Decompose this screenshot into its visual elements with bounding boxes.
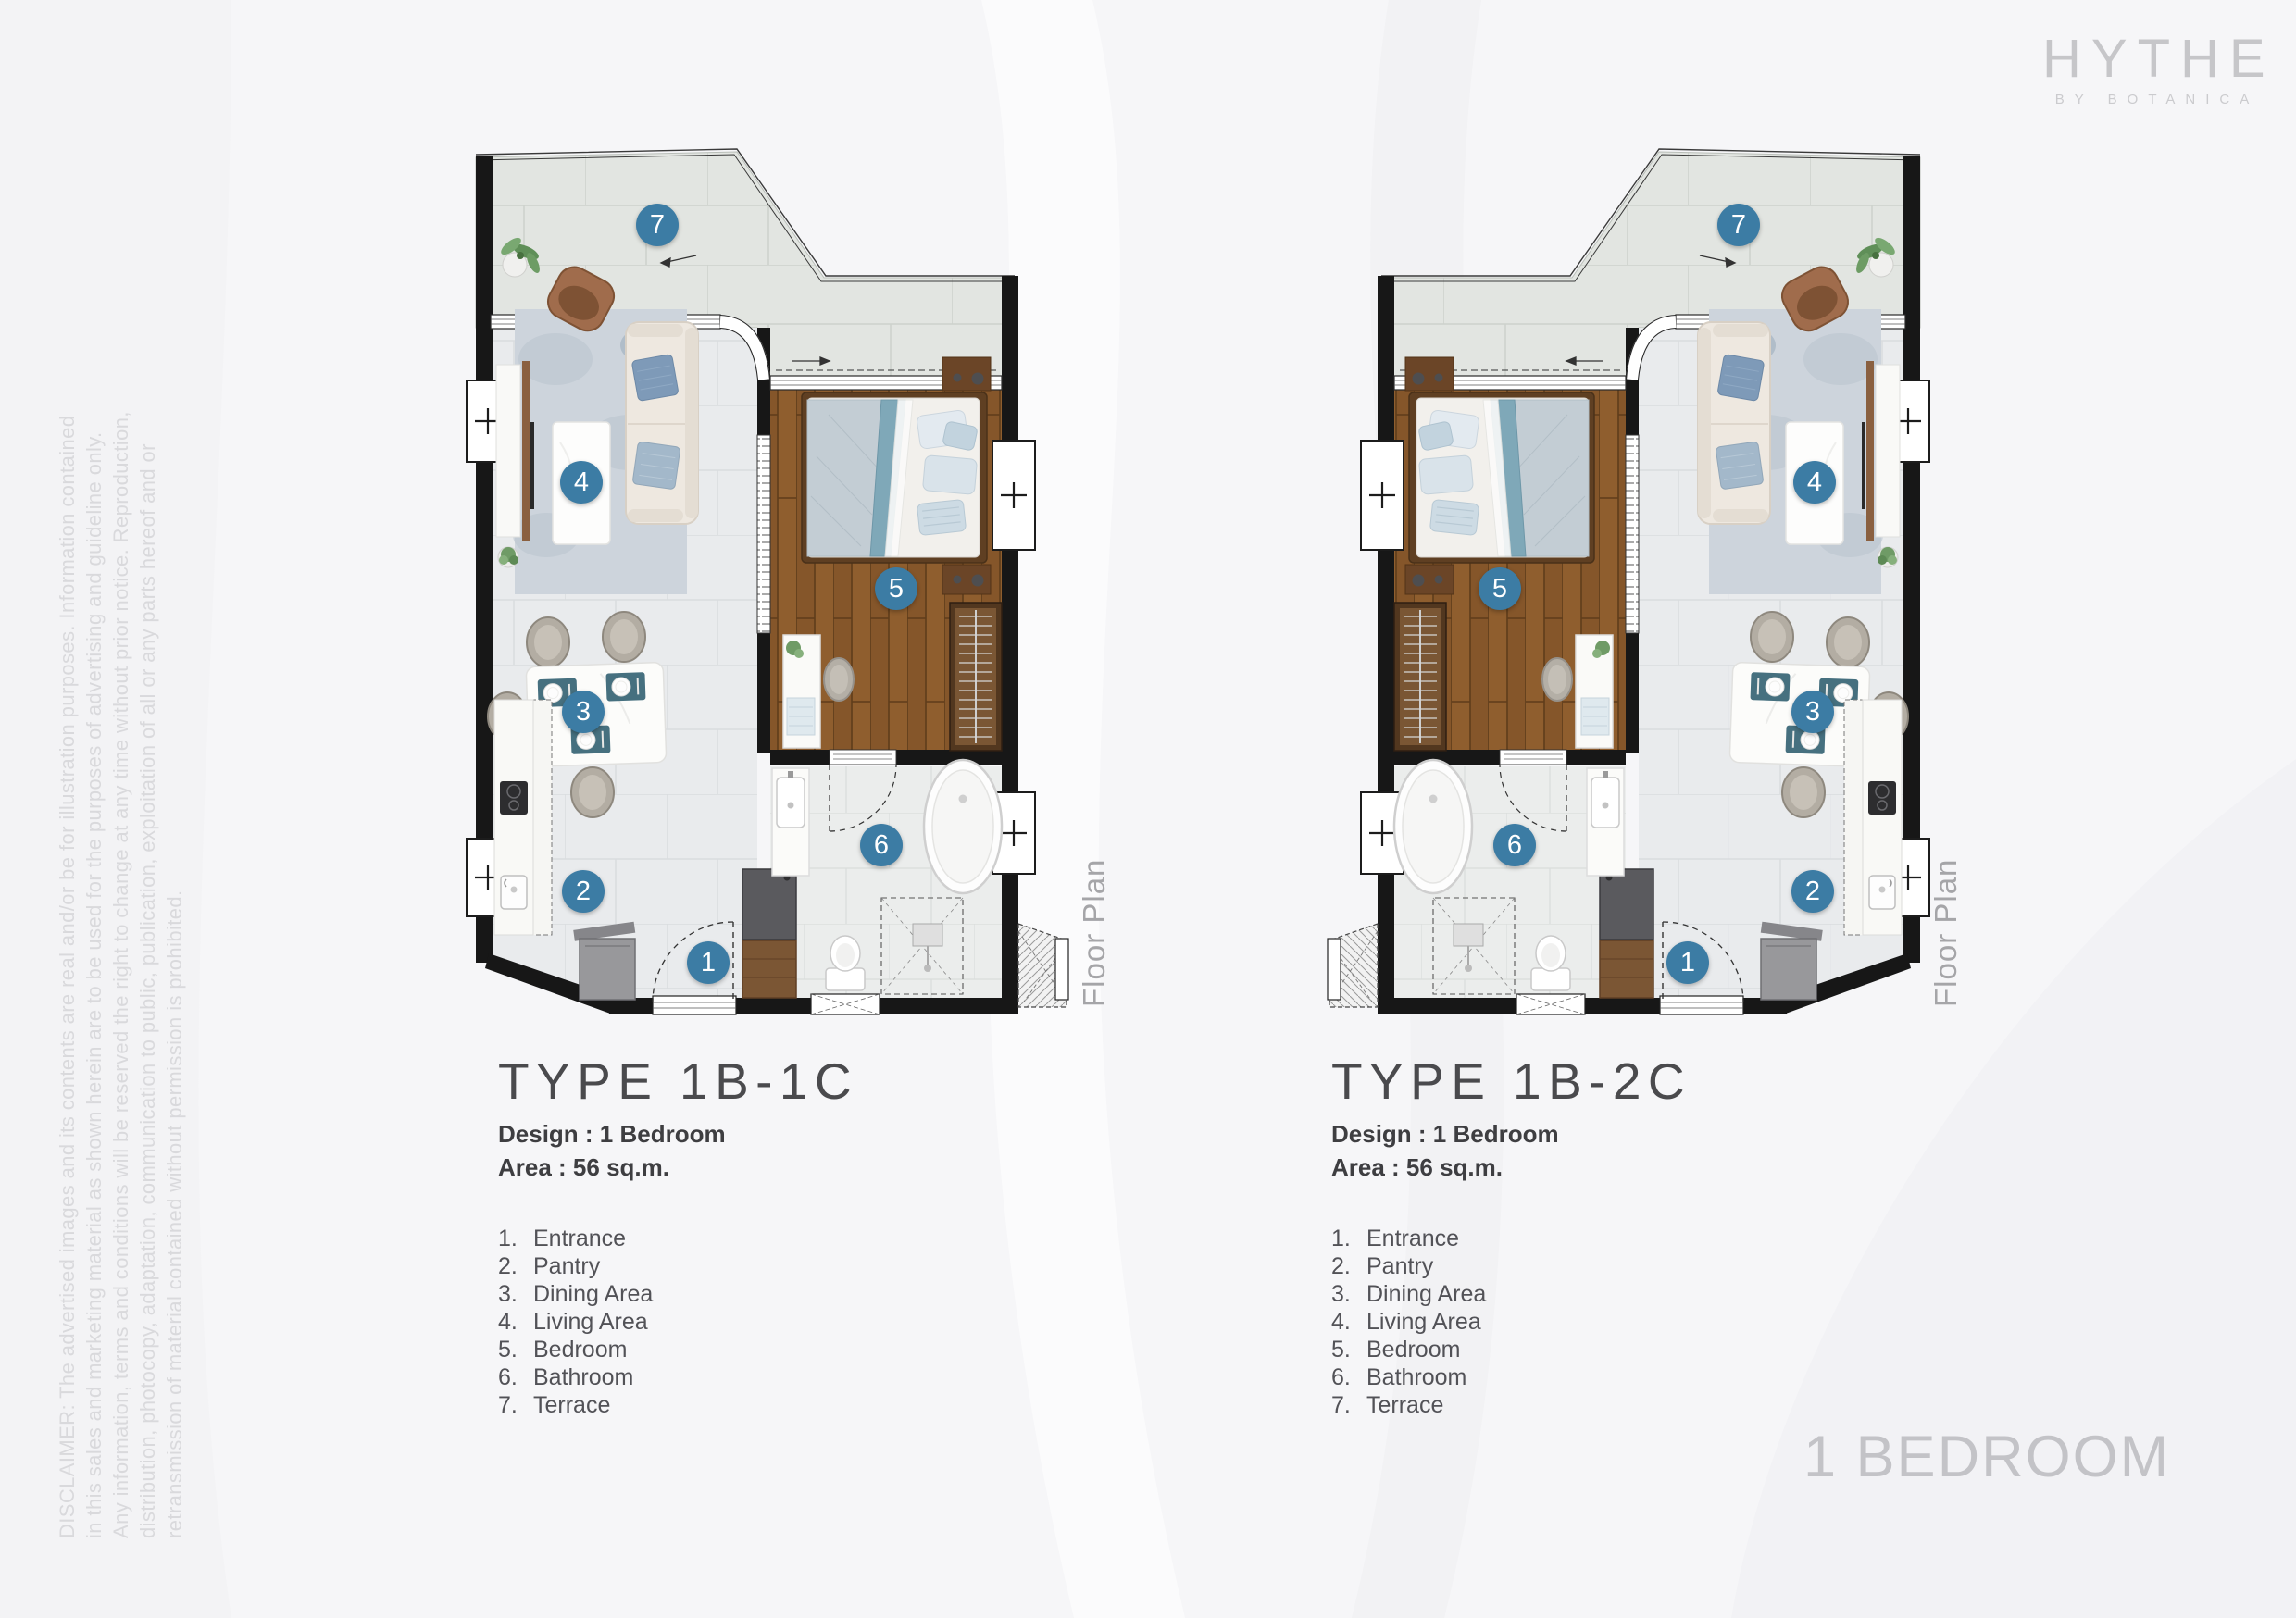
disclaimer: DISCLAIMER: The advertised images and it…	[54, 57, 188, 1538]
legend-item-label: Entrance	[1366, 1225, 1459, 1252]
legend-item: 5.Bedroom	[1331, 1336, 1887, 1363]
disclaimer-line: in this sales and marketing material as …	[81, 57, 107, 1538]
legend-item-number: 5.	[1331, 1336, 1366, 1363]
legend-list: 1.Entrance2.Pantry3.Dining Area4.Living …	[1331, 1225, 1887, 1419]
brand-byline: BY BOTANICA	[2042, 92, 2272, 107]
legend-item: 1.Entrance	[498, 1225, 1054, 1252]
area-marker: 7	[1717, 204, 1760, 246]
marker-layer: 7432156	[1322, 146, 1933, 1026]
background-waves	[0, 0, 2296, 1618]
marker-layer: 7432156	[463, 146, 1074, 1026]
area-marker: 6	[1493, 824, 1536, 866]
legend-item-label: Bathroom	[533, 1363, 633, 1391]
legend-item: 4.Living Area	[1331, 1308, 1887, 1336]
legend-item: 6.Bathroom	[498, 1363, 1054, 1391]
type-block-1b-2c: TYPE 1B-2C Design : 1 Bedroom Area : 56 …	[1331, 1052, 1887, 1419]
legend-item-number: 2.	[498, 1252, 533, 1280]
legend-item-label: Pantry	[533, 1252, 600, 1280]
legend-item-label: Terrace	[1366, 1391, 1443, 1419]
legend-item-label: Pantry	[1366, 1252, 1433, 1280]
type-block-1b-1c: TYPE 1B-1C Design : 1 Bedroom Area : 56 …	[498, 1052, 1054, 1419]
area-marker: 1	[1666, 941, 1709, 984]
brochure-page: DISCLAIMER: The advertised images and it…	[0, 0, 2296, 1618]
design-label: Design : 1 Bedroom	[498, 1120, 1054, 1149]
legend-item-label: Entrance	[533, 1225, 626, 1252]
area-marker: 6	[860, 824, 903, 866]
floor-plan-caption: Floor Plan	[1077, 859, 1112, 1007]
floor-plan-type-1b-2c: 7432156	[1322, 146, 1933, 1026]
type-title: TYPE 1B-2C	[1331, 1052, 1887, 1111]
area-marker: 2	[1791, 870, 1834, 913]
legend-item: 5.Bedroom	[498, 1336, 1054, 1363]
floor-plan-caption: Floor Plan	[1928, 859, 1964, 1007]
legend-item: 3.Dining Area	[1331, 1280, 1887, 1308]
area-marker: 4	[560, 461, 603, 504]
legend-item-label: Bathroom	[1366, 1363, 1466, 1391]
legend-item-number: 2.	[1331, 1252, 1366, 1280]
legend-item-number: 1.	[1331, 1225, 1366, 1252]
area-marker: 5	[875, 567, 917, 610]
area-label: Area : 56 sq.m.	[498, 1153, 1054, 1182]
legend-list: 1.Entrance2.Pantry3.Dining Area4.Living …	[498, 1225, 1054, 1419]
legend-item: 2.Pantry	[1331, 1252, 1887, 1280]
disclaimer-line: Any information, terms and conditions wi…	[107, 57, 134, 1538]
type-title: TYPE 1B-1C	[498, 1052, 1054, 1111]
area-marker: 7	[636, 204, 679, 246]
legend-item-label: Living Area	[1366, 1308, 1481, 1336]
legend-item-number: 4.	[498, 1308, 533, 1336]
legend-item-label: Dining Area	[533, 1280, 653, 1308]
floor-plan-type-1b-1c: 7432156	[463, 146, 1074, 1026]
disclaimer-line: retransmission of material contained wit…	[161, 57, 188, 1538]
legend-item: 3.Dining Area	[498, 1280, 1054, 1308]
page-category-label: 1 BEDROOM	[1803, 1424, 2170, 1490]
brand-name: HYTHE	[2042, 28, 2272, 90]
legend-item-label: Dining Area	[1366, 1280, 1486, 1308]
legend-item: 4.Living Area	[498, 1308, 1054, 1336]
legend-item-number: 1.	[498, 1225, 533, 1252]
disclaimer-line: distribution, photocopy, adaptation, com…	[134, 57, 161, 1538]
legend-item-label: Living Area	[533, 1308, 648, 1336]
legend-item: 1.Entrance	[1331, 1225, 1887, 1252]
disclaimer-line: DISCLAIMER: The advertised images and it…	[54, 57, 81, 1538]
legend-item: 6.Bathroom	[1331, 1363, 1887, 1391]
legend-item-label: Bedroom	[533, 1336, 627, 1363]
area-label: Area : 56 sq.m.	[1331, 1153, 1887, 1182]
area-marker: 3	[1791, 691, 1834, 733]
design-label: Design : 1 Bedroom	[1331, 1120, 1887, 1149]
legend-item: 7.Terrace	[1331, 1391, 1887, 1419]
legend-item: 7.Terrace	[498, 1391, 1054, 1419]
area-marker: 3	[562, 691, 605, 733]
legend-item-label: Bedroom	[1366, 1336, 1460, 1363]
legend-item-number: 7.	[1331, 1391, 1366, 1419]
legend-item-number: 7.	[498, 1391, 533, 1419]
area-marker: 4	[1793, 461, 1836, 504]
area-marker: 2	[562, 870, 605, 913]
legend-item-number: 6.	[498, 1363, 533, 1391]
legend-item-number: 3.	[498, 1280, 533, 1308]
legend-item-number: 3.	[1331, 1280, 1366, 1308]
legend-item-label: Terrace	[533, 1391, 610, 1419]
legend-item-number: 4.	[1331, 1308, 1366, 1336]
legend-item-number: 6.	[1331, 1363, 1366, 1391]
legend-item: 2.Pantry	[498, 1252, 1054, 1280]
area-marker: 1	[687, 941, 730, 984]
brand-logo: HYTHE BY BOTANICA	[2042, 28, 2272, 107]
area-marker: 5	[1479, 567, 1521, 610]
legend-item-number: 5.	[498, 1336, 533, 1363]
